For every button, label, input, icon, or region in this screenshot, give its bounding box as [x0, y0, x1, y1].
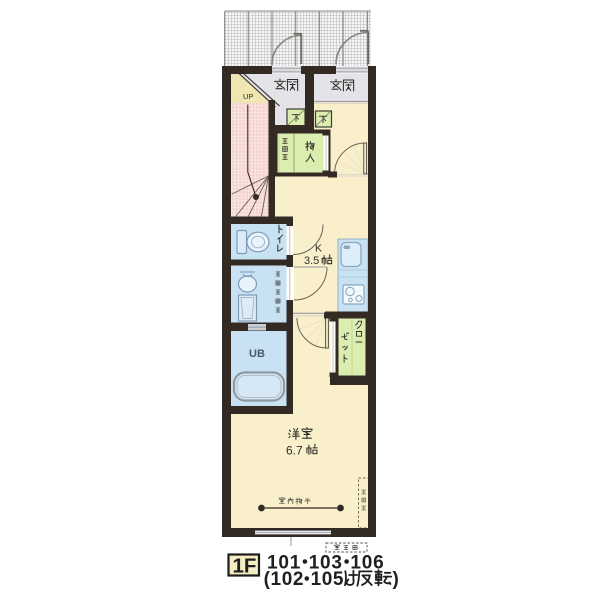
- svg-text:K: K: [315, 243, 322, 255]
- svg-text:1F: 1F: [233, 554, 257, 577]
- svg-text:UB: UB: [249, 348, 265, 360]
- svg-text:3.5: 3.5: [304, 255, 319, 267]
- svg-text:): ): [393, 569, 399, 590]
- svg-text:(102: (102: [264, 569, 304, 590]
- svg-text:UP: UP: [243, 92, 253, 101]
- svg-text:6.7: 6.7: [286, 444, 303, 458]
- svg-text:105: 105: [311, 569, 345, 590]
